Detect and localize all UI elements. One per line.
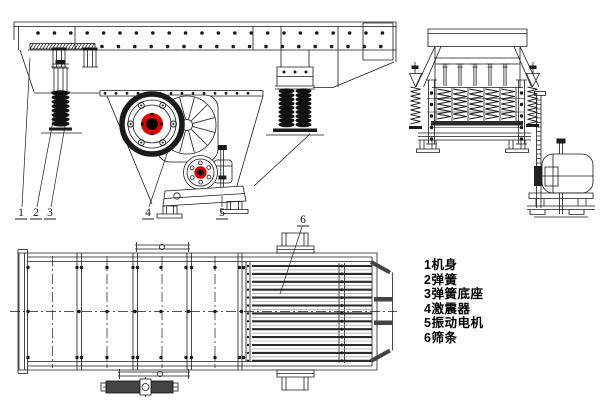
parts-list: 1机身 2弹簧 3弹簧底座 4激震器 5振动电机 6筛条 [424,258,483,346]
hanger-right-base [526,124,539,127]
callout-1: 1 [18,207,24,219]
flywheel-hub-center [146,118,158,130]
parts-list-item: 3弹簧底座 [424,287,483,302]
hanger-left-nut [412,66,419,70]
spring-support-post [51,64,70,92]
belt-rod-nut [557,139,566,144]
box-rivet [294,71,297,74]
plan-rivet-rows [26,266,245,359]
pulley-hub-center [197,169,203,175]
bottom-motor-block [106,381,140,393]
hanger-right-nut [530,66,537,70]
motor-body-end [542,154,593,193]
bolt-nut [218,176,226,180]
hanger-spring-right [528,87,538,124]
bottom-spout [277,370,314,390]
hanger-cap [52,48,67,51]
bottom-motor-block [151,381,173,393]
callout-4: 4 [145,207,151,219]
discharge-stub [374,321,393,326]
hopper-top-band [428,29,527,47]
box-rivet [283,71,286,74]
motor-base-platform [163,186,246,206]
spring-base-plate [49,128,72,131]
callout-5: 5 [219,207,225,219]
callout-underlines [15,219,309,226]
box-rivet [305,71,308,74]
right-spring-base [273,129,317,133]
bottom-rails [417,133,532,153]
parts-list-item: 1机身 [424,258,483,273]
lower-chord-rivets [104,92,250,95]
hanger-left-base [409,126,422,129]
side-view [14,22,396,218]
hanger-spring-left [411,87,421,124]
technical-drawing: 1 2 3 4 5 6 [0,0,600,400]
end-view [409,29,595,217]
spring-bank-bottom-bar [431,121,523,126]
coil-spring-right-b [296,88,312,127]
grizzly-bars [252,266,372,361]
bottom-bracket [118,369,190,379]
motor-mount [527,193,595,217]
top-spout [277,233,314,253]
spring-bank [436,88,516,122]
bottom-motor-hub [142,384,149,391]
spring-support-cap [56,60,66,65]
plan-view [10,233,397,397]
bolt-head [218,145,227,150]
top-left-bracket [135,242,190,252]
belt-column-ticks [537,100,542,163]
callout-6: 6 [300,214,306,226]
coil-spring-left [52,90,70,126]
callout-3: 3 [47,207,53,219]
parts-list-item: 2弹簧 [424,273,483,288]
callout-2: 2 [33,207,39,219]
hanger-cap [83,48,98,51]
grizzly-bar-ends [441,64,509,86]
parts-list-item: 4激震器 [424,302,483,317]
parts-list-item: 5振动电机 [424,316,483,331]
parts-list-item: 6筛条 [424,331,483,346]
deck-rivet-rows [36,31,384,48]
bar-tie-rivets [340,265,343,363]
coil-spring-right-a [279,88,295,127]
drawing-canvas: 1 2 3 4 5 6 1机身 2弹簧 3弹簧底座 4激震器 5振动电机 6筛条 [0,0,600,400]
bar-comb-rivets [247,265,249,362]
right-spring-box [275,67,315,89]
discharge-stub [374,297,393,302]
